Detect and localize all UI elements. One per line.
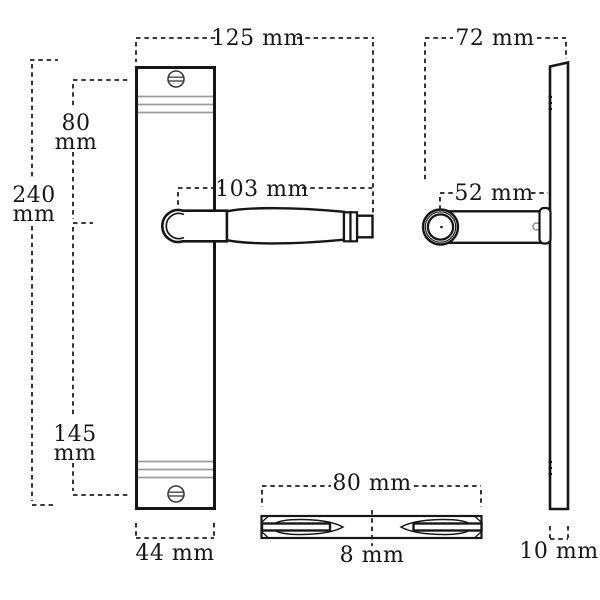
dim-8-label: 8 mm: [340, 543, 405, 568]
dimension-plate-height: 240 mm: [12, 60, 58, 505]
dim-145-unit: mm: [54, 441, 97, 466]
dimension-plate-width: 44 mm: [135, 523, 214, 566]
screw-icon: [168, 486, 184, 502]
screw-icon: [168, 71, 184, 87]
dimension-spindle-length: 80 mm: [262, 471, 481, 507]
dimension-top-to-handle: 80 mm: [55, 80, 128, 223]
dim-80b-label: 80 mm: [332, 471, 411, 496]
door-handle-dimension-diagram: 125 mm 72 mm 103 mm 52 mm 80 mm 240: [0, 0, 600, 600]
right-grip-bar-top: [414, 524, 482, 531]
knob-center-mark: [440, 226, 443, 229]
side-knob: [423, 210, 458, 245]
dim-103-label: 103 mm: [215, 177, 309, 202]
dimension-handle-to-bottom: 145 mm: [53, 227, 128, 495]
dimension-knob-to-plate: 52 mm: [440, 181, 548, 212]
side-backplate: [550, 63, 568, 510]
left-grip-bar-top: [262, 524, 330, 531]
front-lever-handle: [162, 208, 372, 243]
dim-44-label: 44 mm: [135, 541, 214, 566]
dim-240-unit: mm: [13, 202, 56, 227]
side-collar: [540, 208, 551, 244]
handle-ferrule-ring: [351, 212, 358, 241]
dim-52-label: 52 mm: [454, 181, 533, 206]
dimension-side-projection: 72 mm: [425, 26, 566, 183]
side-view: [423, 63, 568, 510]
front-view: [137, 68, 373, 509]
dim-72-label: 72 mm: [455, 26, 534, 51]
front-backplate: [137, 68, 215, 509]
dim-80-unit: mm: [55, 130, 98, 155]
bottom-view: [262, 510, 482, 546]
dimension-spindle-thickness: 8 mm: [340, 543, 405, 568]
handle-grip-barrel: [227, 208, 344, 243]
handle-tip: [357, 216, 373, 238]
dimension-plate-thickness: 10 mm: [519, 526, 598, 564]
technical-drawing-canvas: 125 mm 72 mm 103 mm 52 mm 80 mm 240: [0, 0, 600, 600]
dim-125-label: 125 mm: [211, 26, 305, 51]
dim-10-label: 10 mm: [519, 539, 598, 564]
